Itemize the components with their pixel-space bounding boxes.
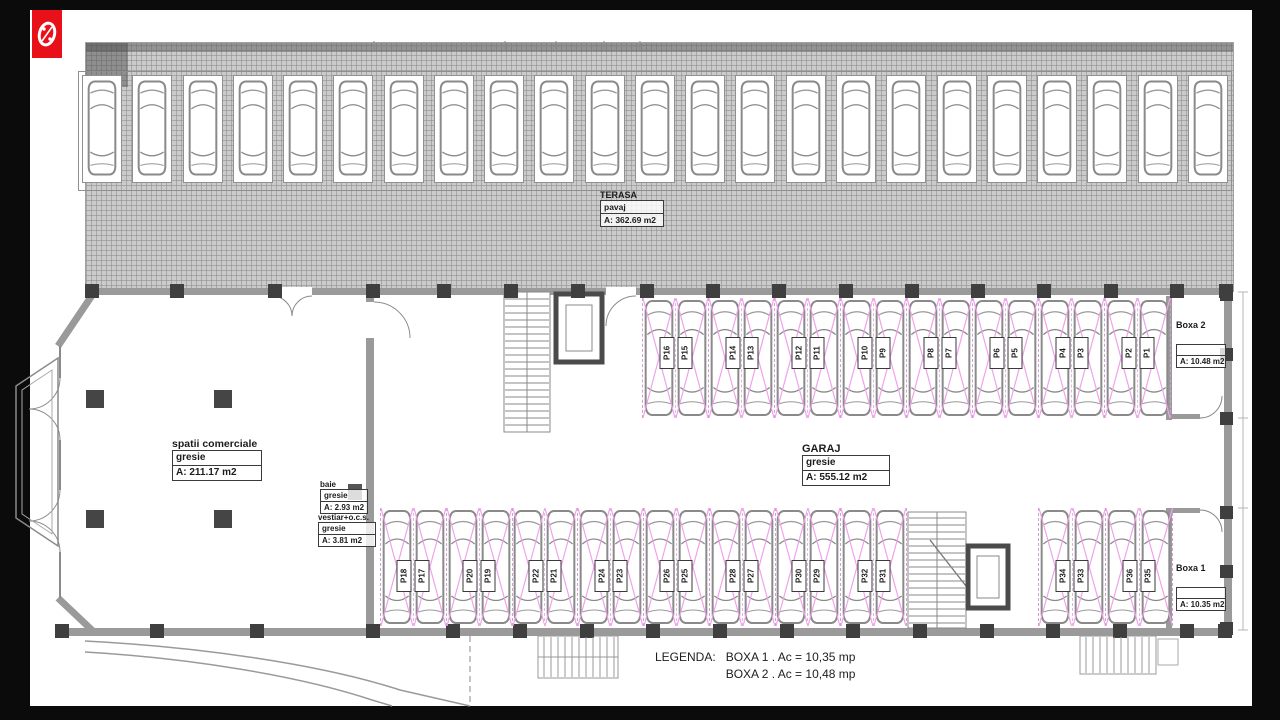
terrace-canopy-edge — [86, 43, 1233, 52]
parking-spot-label-pair: P20 P19 — [463, 560, 496, 592]
terrace-parking-stall — [1037, 75, 1077, 183]
car-top-view-icon — [238, 79, 268, 177]
car-top-view-icon — [489, 79, 519, 177]
terrace-parking-stall — [484, 75, 524, 183]
parking-spot-label-pair: P6 P5 — [989, 337, 1022, 369]
room-title: TERASA — [600, 190, 664, 200]
parking-spot-label: P16 — [659, 337, 674, 369]
frame-right-bar — [1252, 0, 1280, 720]
parking-spot-label-pair: P34 P33 — [1056, 560, 1089, 592]
frame-top-bar — [0, 0, 1280, 10]
parking-bay: P14 P13 — [708, 298, 774, 418]
brand-logo — [32, 10, 62, 58]
terrace-parking-stall — [434, 75, 474, 183]
parking-spot-label: P31 — [875, 560, 890, 592]
terrace-parking-row — [82, 75, 1228, 185]
parking-bay: P22 P21 — [512, 508, 578, 626]
parking-bay: P6 P5 — [972, 298, 1038, 418]
terrace-parking-stall — [987, 75, 1027, 183]
parking-spot-label-pair: P30 P29 — [791, 560, 824, 592]
garaj-label: GARAJ gresie A: 555.12 m2 — [802, 443, 890, 486]
parking-bay: P28 P27 — [709, 508, 775, 626]
terrace-parking-stall — [635, 75, 675, 183]
terrace-parking-stall — [283, 75, 323, 183]
parking-spot-label-pair: P12 P11 — [791, 337, 824, 369]
parking-spot-label: P19 — [481, 560, 496, 592]
parking-spot-label: P29 — [809, 560, 824, 592]
parking-spot-label: P32 — [857, 560, 872, 592]
parking-spot-label: P14 — [725, 337, 740, 369]
parking-spot-label-pair: P18 P17 — [397, 560, 430, 592]
parking-spot-label: P3 — [1073, 337, 1088, 369]
car-top-view-icon — [338, 79, 368, 177]
room-title: Boxa 1 — [1176, 563, 1226, 573]
parking-spot-label: P30 — [791, 560, 806, 592]
legend: LEGENDA: BOXA 1 . Ac = 10,35 mp BOXA 2 .… — [655, 650, 855, 681]
car-top-view-icon — [942, 79, 972, 177]
parking-spot-label: P23 — [612, 560, 627, 592]
room-material: gresie — [803, 456, 889, 471]
legend-label: LEGENDA: — [655, 650, 716, 681]
car-top-view-icon — [1042, 79, 1072, 177]
car-top-view-icon — [288, 79, 318, 177]
parking-spot-label: P12 — [791, 337, 806, 369]
parking-spot-label-pair: P2 P1 — [1121, 337, 1154, 369]
terrace-parking-stall — [183, 75, 223, 183]
car-top-view-icon — [891, 79, 921, 177]
parking-bay: P20 P19 — [446, 508, 512, 626]
parking-spot-label-pair: P4 P3 — [1055, 337, 1088, 369]
parking-bay: P34 P33 — [1038, 508, 1105, 626]
parking-spot-label-pair: P8 P7 — [923, 337, 956, 369]
parking-spot-label: P5 — [1007, 337, 1022, 369]
terrace-area — [85, 42, 1234, 292]
parking-bay: P16 P15 — [642, 298, 708, 418]
parking-spot-label-pair: P10 P9 — [857, 337, 890, 369]
parking-spot-label: P34 — [1056, 560, 1071, 592]
parking-spot-label: P26 — [660, 560, 675, 592]
parking-spot-label: P17 — [415, 560, 430, 592]
parking-spot-label-pair: P28 P27 — [726, 560, 759, 592]
car-top-view-icon — [439, 79, 469, 177]
parking-spot-label-pair: P26 P25 — [660, 560, 693, 592]
parking-bay: P18 P17 — [380, 508, 446, 626]
room-material: gresie — [173, 451, 261, 466]
vestiar-label: vestiar+o.c.s. gresie A: 3.81 m2 — [318, 513, 376, 547]
parking-bay: P2 P1 — [1104, 298, 1170, 418]
terrace-parking-stall — [585, 75, 625, 183]
garage-top-parking-row: P16 P15 P14 P13 — [642, 298, 1171, 418]
parking-spot-label-pair: P24 P23 — [594, 560, 627, 592]
floor-plan-page: TERASA pavaj A: 362.69 m2 spatii comerci… — [0, 0, 1280, 720]
terrace-parking-stall — [786, 75, 826, 183]
car-top-view-icon — [791, 79, 821, 177]
terrace-parking-stall — [735, 75, 775, 183]
car-top-view-icon — [740, 79, 770, 177]
parking-spot-label-pair: P36 P35 — [1123, 560, 1156, 592]
garage-bottom-left-parking-row: P18 P17 P20 P19 — [380, 508, 907, 626]
parking-spot-label: P20 — [463, 560, 478, 592]
terasa-label: TERASA pavaj A: 362.69 m2 — [600, 190, 664, 227]
terrace-parking-stall — [132, 75, 172, 183]
room-area: A: 10.35 m2 — [1177, 599, 1225, 610]
room-title: Boxa 2 — [1176, 320, 1226, 330]
parking-bay: P12 P11 — [774, 298, 840, 418]
parking-spot-label: P7 — [941, 337, 956, 369]
terrace-parking-stall — [82, 75, 122, 183]
parking-spot-label-pair: P22 P21 — [528, 560, 561, 592]
parking-bay: P24 P23 — [577, 508, 643, 626]
parking-spot-label: P9 — [875, 337, 890, 369]
baie-label: baie gresie A: 2.93 m2 — [320, 480, 368, 514]
terrace-parking-stall — [937, 75, 977, 183]
parking-spot-label-pair: P14 P13 — [725, 337, 758, 369]
boxa2-label: Boxa 2 A: 10.48 m2 — [1176, 320, 1226, 368]
spatii-comerciale-label: spatii comerciale gresie A: 211.17 m2 — [172, 438, 262, 481]
parking-spot-label: P2 — [1121, 337, 1136, 369]
parking-spot-label: P27 — [744, 560, 759, 592]
room-material: gresie — [321, 490, 367, 502]
room-area: A: 555.12 m2 — [803, 471, 889, 485]
car-top-view-icon — [640, 79, 670, 177]
room-material: gresie — [319, 523, 375, 535]
room-area: A: 2.93 m2 — [321, 502, 367, 513]
parking-spot-label: P11 — [809, 337, 824, 369]
parking-spot-label: P1 — [1139, 337, 1154, 369]
garage-bottom-right-parking-row: P34 P33 P36 P35 — [1038, 508, 1173, 626]
parking-spot-label: P10 — [857, 337, 872, 369]
terrace-parking-stall — [1138, 75, 1178, 183]
room-area: A: 10.48 m2 — [1177, 356, 1225, 367]
parking-spot-label-pair: P16 P15 — [659, 337, 692, 369]
parking-bay: P4 P3 — [1038, 298, 1104, 418]
room-area: A: 3.81 m2 — [319, 535, 375, 546]
terrace-parking-stall — [233, 75, 273, 183]
parking-spot-label: P35 — [1141, 560, 1156, 592]
parking-spot-label: P24 — [594, 560, 609, 592]
boxa1-label: Boxa 1 A: 10.35 m2 — [1176, 563, 1226, 611]
parking-spot-label: P8 — [923, 337, 938, 369]
car-top-view-icon — [389, 79, 419, 177]
room-material — [1177, 588, 1225, 599]
car-top-view-icon — [188, 79, 218, 177]
car-top-view-icon — [841, 79, 871, 177]
room-title: vestiar+o.c.s. — [318, 513, 376, 522]
parking-spot-label: P22 — [528, 560, 543, 592]
car-top-view-icon — [590, 79, 620, 177]
room-title: GARAJ — [802, 443, 890, 455]
parking-spot-label: P18 — [397, 560, 412, 592]
terrace-parking-stall — [333, 75, 373, 183]
room-area: A: 362.69 m2 — [601, 214, 663, 226]
parking-bay: P36 P35 — [1105, 508, 1172, 626]
room-material — [1177, 345, 1225, 356]
room-title: baie — [320, 480, 368, 489]
parking-spot-label: P33 — [1074, 560, 1089, 592]
parking-bay: P30 P29 — [775, 508, 841, 626]
parking-bay: P8 P7 — [906, 298, 972, 418]
car-top-view-icon — [539, 79, 569, 177]
frame-bottom-bar — [0, 706, 1280, 720]
terrace-parking-stall — [836, 75, 876, 183]
car-top-view-icon — [690, 79, 720, 177]
parking-bay: P32 P31 — [840, 508, 906, 626]
car-top-view-icon — [137, 79, 167, 177]
parking-spot-label: P6 — [989, 337, 1004, 369]
terrace-parking-stall — [685, 75, 725, 183]
parking-spot-label: P15 — [677, 337, 692, 369]
car-top-view-icon — [1193, 79, 1223, 177]
terrace-parking-stall — [384, 75, 424, 183]
parking-spot-label-pair: P32 P31 — [857, 560, 890, 592]
car-top-view-icon — [87, 79, 117, 177]
parking-spot-label: P21 — [546, 560, 561, 592]
frame-left-bar — [0, 0, 30, 720]
parking-spot-label: P28 — [726, 560, 741, 592]
car-top-view-icon — [1092, 79, 1122, 177]
car-top-view-icon — [992, 79, 1022, 177]
parking-bay: P10 P9 — [840, 298, 906, 418]
legend-line: BOXA 2 . Ac = 10,48 mp — [726, 667, 856, 681]
terrace-parking-stall — [886, 75, 926, 183]
parking-spot-label: P25 — [678, 560, 693, 592]
parking-bay: P26 P25 — [643, 508, 709, 626]
room-material: pavaj — [601, 201, 663, 214]
terrace-parking-stall — [1188, 75, 1228, 183]
legend-line: BOXA 1 . Ac = 10,35 mp — [726, 650, 856, 664]
room-title: spatii comerciale — [172, 438, 262, 450]
parking-spot-label: P36 — [1123, 560, 1138, 592]
parking-spot-label: P13 — [743, 337, 758, 369]
terrace-parking-stall — [534, 75, 574, 183]
terrace-parking-stall — [1087, 75, 1127, 183]
car-top-view-icon — [1143, 79, 1173, 177]
percent-badge-icon — [36, 17, 58, 51]
room-area: A: 211.17 m2 — [173, 466, 261, 480]
parking-spot-label: P4 — [1055, 337, 1070, 369]
